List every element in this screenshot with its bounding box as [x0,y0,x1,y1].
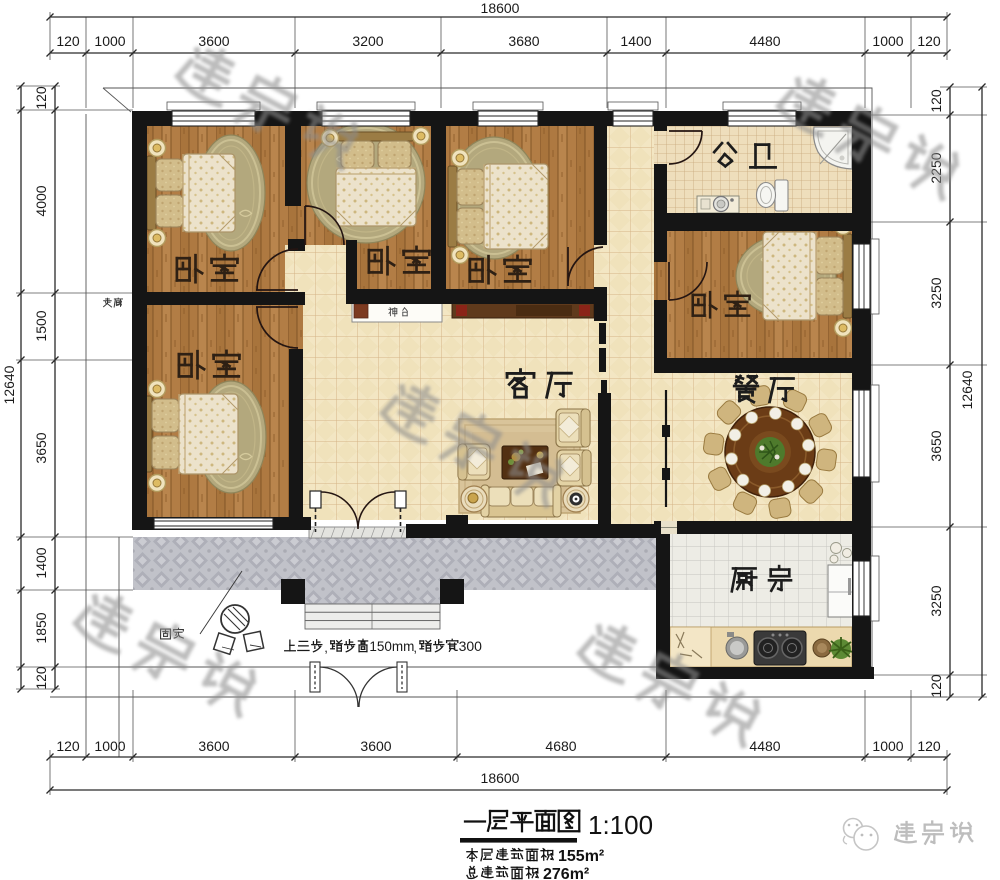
svg-text:12640: 12640 [959,370,975,409]
svg-text:4480: 4480 [749,738,780,754]
svg-text:,: , [324,640,328,655]
svg-text:3680: 3680 [508,33,539,49]
svg-text:1400: 1400 [620,33,651,49]
svg-text:120: 120 [56,738,80,754]
svg-text:120: 120 [917,33,941,49]
svg-text:3250: 3250 [928,585,944,616]
svg-text:3600: 3600 [360,738,391,754]
svg-text:18600: 18600 [481,0,520,16]
svg-text:300: 300 [459,638,483,654]
svg-text:4480: 4480 [749,33,780,49]
svg-text::: : [549,847,554,863]
svg-text:150mm: 150mm [369,639,414,654]
svg-text:12640: 12640 [1,365,17,404]
svg-text:3650: 3650 [928,430,944,461]
svg-text:1:100: 1:100 [588,810,653,840]
svg-text:276m²: 276m² [543,866,589,880]
svg-text:3600: 3600 [198,738,229,754]
svg-text:4000: 4000 [33,185,49,216]
svg-text:1500: 1500 [33,310,49,341]
svg-text:3200: 3200 [352,33,383,49]
svg-text:1000: 1000 [94,738,125,754]
svg-text:1000: 1000 [872,33,903,49]
svg-text:3250: 3250 [928,277,944,308]
svg-text:4680: 4680 [545,738,576,754]
svg-text:3600: 3600 [198,33,229,49]
svg-text::: : [534,865,539,880]
svg-text:1400: 1400 [33,547,49,578]
svg-text:120: 120 [928,89,944,113]
svg-text:3650: 3650 [33,432,49,463]
svg-text:1850: 1850 [33,612,49,643]
svg-text:1000: 1000 [94,33,125,49]
svg-text:120: 120 [917,738,941,754]
svg-text:,: , [413,640,417,655]
svg-text:1000: 1000 [872,738,903,754]
svg-text:120: 120 [928,674,944,698]
svg-text:18600: 18600 [481,770,520,786]
svg-text:120: 120 [33,666,49,690]
svg-text:155m²: 155m² [558,848,604,865]
svg-text:120: 120 [33,86,49,110]
svg-text:120: 120 [56,33,80,49]
